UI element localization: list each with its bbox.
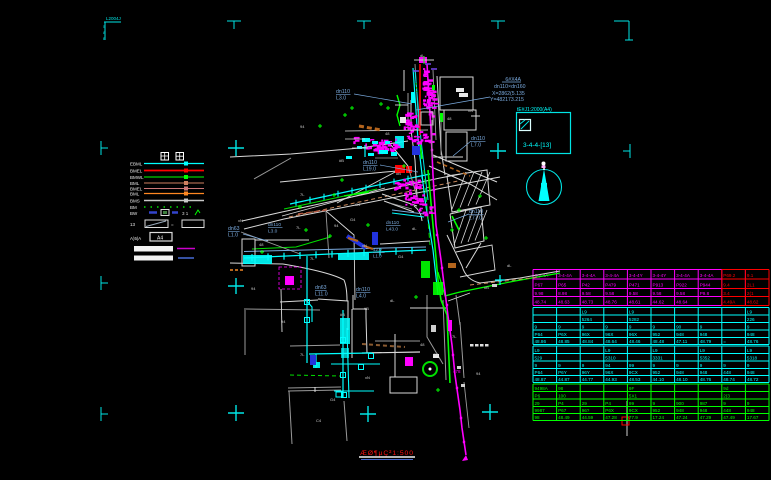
svg-text:9: 9 [676,363,679,368]
svg-text:5310: 5310 [605,356,616,361]
svg-text:=: = [171,222,174,227]
svg-text:L2004J: L2004J [106,16,121,21]
svg-text:96X: 96X [605,332,613,337]
svg-text:7L: 7L [452,334,457,339]
svg-text:48.64: 48.64 [605,339,617,344]
svg-text:42.0: 42.0 [373,247,382,252]
svg-text:P4: P4 [605,401,611,406]
svg-text:L77.0: L77.0 [469,216,482,222]
svg-text:9.1: 9.1 [747,273,754,278]
svg-text:48: 48 [447,116,452,121]
svg-text:=: = [723,339,726,344]
svg-text:dn110: dn110 [363,160,377,166]
svg-text:29: 29 [582,401,588,406]
svg-text:EBML: EBML [130,162,143,167]
svg-text:9: 9 [535,325,538,330]
svg-text:98: 98 [535,415,541,420]
svg-text:8.98: 8.98 [558,291,567,296]
svg-text:948: 948 [747,370,755,375]
svg-text:44.10: 44.10 [653,377,665,382]
svg-text:948: 948 [676,370,684,375]
svg-text:48.61: 48.61 [629,300,641,305]
svg-text:BMWL: BMWL [130,175,144,180]
svg-text:L9: L9 [629,310,635,315]
svg-text:47.28: 47.28 [605,415,617,420]
svg-text:L3.0: L3.0 [336,96,346,102]
svg-text:48.76: 48.76 [605,300,617,305]
svg-text:9: 9 [723,401,726,406]
svg-text:9: 9 [700,363,703,368]
svg-text:48.72: 48.72 [747,377,759,382]
svg-text:G4: G4 [350,217,356,222]
svg-text:48.10: 48.10 [676,377,688,382]
svg-text:dn63: dn63 [228,226,240,232]
svg-text:9.58: 9.58 [582,291,591,296]
svg-text:47.49: 47.49 [723,415,735,420]
svg-text:48.74: 48.74 [535,300,547,305]
svg-text:9: 9 [558,363,561,368]
svg-text:448: 448 [723,408,731,413]
svg-text:#B: #B [339,158,344,163]
svg-text:948: 948 [676,408,684,413]
svg-text:G4: G4 [355,202,361,207]
svg-text:P67: P67 [558,408,567,413]
svg-text:3-4-4A: 3-4-4A [558,273,573,278]
svg-text:3-4-4Y: 3-4-4Y [629,273,643,278]
svg-text:9: 9 [629,325,632,330]
svg-text:P944: P944 [700,283,711,288]
svg-text:L9: L9 [747,310,753,315]
svg-text:P69.2: P69.2 [723,273,735,278]
svg-text:17.67: 17.67 [747,415,759,420]
svg-text:9: 9 [747,401,750,406]
svg-text:BM: BM [130,205,137,210]
svg-text:L9: L9 [653,348,659,353]
svg-text:48.62: 48.62 [747,300,759,305]
svg-text:48: 48 [420,342,425,347]
svg-text:9: 9 [747,363,750,368]
svg-text:dL: dL [412,226,417,231]
svg-text:48.85: 48.85 [558,339,570,344]
svg-text:BMEL: BMEL [130,169,143,174]
svg-text:987: 987 [700,401,708,406]
svg-text:17.24: 17.24 [653,415,665,420]
svg-text:xN: xN [238,218,243,223]
svg-text:9: 9 [723,363,726,368]
svg-text:98: 98 [558,386,564,391]
svg-text:C4: C4 [316,418,322,423]
svg-text:48.53: 48.53 [629,377,641,382]
svg-text:A)5|A: A)5|A [130,236,141,241]
svg-text:44.77: 44.77 [582,377,594,382]
svg-text:952: 952 [653,408,661,413]
svg-text:9: 9 [535,363,538,368]
svg-text:96X: 96X [582,332,590,337]
svg-text:48.48: 48.48 [653,339,665,344]
svg-text:48: 48 [259,242,264,247]
svg-text:3.4: 3.4 [723,291,730,296]
svg-text:BW: BW [130,211,138,216]
svg-text:L7.0: L7.0 [471,143,481,149]
svg-text:478: 478 [453,369,461,374]
svg-text:94: 94 [300,124,305,129]
svg-text:P67: P67 [535,283,544,288]
svg-text:952: 952 [653,370,661,375]
svg-text:5352: 5352 [700,356,711,361]
svg-text:3-4-4A: 3-4-4A [700,273,715,278]
svg-text:xN: xN [362,243,367,248]
svg-text:9: 9 [653,363,656,368]
svg-text:44.93: 44.93 [605,377,617,382]
svg-text:P42: P42 [582,283,591,288]
svg-text:48.76: 48.76 [747,339,759,344]
svg-text:dn110×dn160: dn110×dn160 [494,84,526,90]
svg-text:dL: dL [390,298,395,303]
svg-text:948: 948 [676,332,684,337]
svg-text:BML: BML [130,192,140,197]
svg-text:L9: L9 [747,348,753,353]
svg-text:dL: dL [507,263,512,268]
svg-text:3331: 3331 [653,356,664,361]
svg-text:48.86: 48.86 [535,339,547,344]
svg-text:9.58: 9.58 [629,291,638,296]
svg-text:900: 900 [676,401,684,406]
svg-text:9: 9 [582,325,585,330]
svg-text:dn110: dn110 [268,222,281,228]
svg-text:dn110: dn110 [471,136,485,142]
svg-text:47.11: 47.11 [676,339,688,344]
svg-text:48.87: 48.87 [535,377,547,382]
svg-text:48.46: 48.46 [629,339,641,344]
svg-text:48.49: 48.49 [558,415,570,420]
svg-text:9CX: 9CX [629,370,638,375]
svg-text:2L1: 2L1 [747,283,755,288]
svg-text:94: 94 [251,286,256,291]
svg-text:P64: P64 [535,332,544,337]
svg-text:48.73: 48.73 [582,300,594,305]
svg-text:9: 9 [582,363,585,368]
svg-text:9.4: 9.4 [723,283,730,288]
svg-text:dn110: dn110 [469,209,483,215]
svg-text:94: 94 [334,223,339,228]
svg-text:5318: 5318 [747,356,758,361]
svg-text:L9: L9 [605,348,611,353]
svg-text:48: 48 [385,131,390,136]
svg-text:7L: 7L [300,352,305,357]
svg-text:9: 9 [558,325,561,330]
svg-text:#B: #B [364,306,369,311]
svg-text:L9: L9 [700,348,706,353]
svg-text:9: 9 [653,401,656,406]
svg-text:77.9: 77.9 [629,415,638,420]
svg-text:2(1: 2(1 [747,291,754,296]
svg-text:L4.0: L4.0 [356,294,366,300]
svg-text:952: 952 [653,332,661,337]
svg-text:44.87: 44.87 [558,377,570,382]
svg-text:29: 29 [535,401,541,406]
svg-text:G4: G4 [398,254,404,259]
svg-text:L19.0: L19.0 [363,167,376,173]
svg-text:L11.0: L11.0 [315,292,328,298]
svg-text:96Y: 96Y [582,370,590,375]
svg-text:L1.0: L1.0 [228,233,238,239]
svg-text:ÆØ¶µÇ²1:500: ÆØ¶µÇ²1:500 [360,450,413,457]
svg-text:9F: 9F [629,386,635,391]
svg-text:94: 94 [605,363,611,368]
svg-text:dn110: dn110 [336,89,350,95]
svg-text:xN: xN [365,375,370,380]
svg-text:48.79: 48.79 [700,339,712,344]
svg-text:dL: dL [420,53,425,58]
svg-text:48.74: 48.74 [723,377,735,382]
svg-text:BML: BML [130,181,140,186]
svg-text:48.76: 48.76 [700,377,712,382]
svg-text:L9: L9 [535,348,541,353]
svg-text:3-4-4Y: 3-4-4Y [653,273,667,278]
svg-text:9: 9 [605,325,608,330]
svg-text:dn63: dn63 [315,285,327,291]
svg-text:96X: 96X [629,332,637,337]
svg-text:3-4-4-[13]: 3-4-4-[13] [523,142,551,149]
svg-text:100: 100 [558,394,566,399]
svg-text:7L: 7L [300,192,305,197]
svg-text:44.62: 44.62 [653,300,665,305]
svg-text:A4: A4 [157,236,163,242]
svg-text:5264: 5264 [582,317,593,322]
svg-text:5282: 5282 [629,317,640,322]
svg-text:47.24: 47.24 [676,415,688,420]
svg-text:7L: 7L [296,225,301,230]
svg-text:48.84: 48.84 [582,339,594,344]
svg-text:P6Y: P6Y [558,370,567,375]
svg-text:948: 948 [700,332,708,337]
svg-text:L9: L9 [582,310,588,315]
svg-text:4.49A: 4.49A [723,300,736,305]
svg-text:BMS: BMS [130,199,140,204]
svg-text:9987: 9987 [535,408,546,413]
svg-text:448: 448 [723,370,731,375]
svg-text:P922: P922 [676,283,687,288]
svg-text:#B: #B [484,285,489,290]
svg-text:48.64: 48.64 [676,300,688,305]
svg-text:96X: 96X [605,370,613,375]
svg-text:P64: P64 [535,370,544,375]
svg-text:948: 948 [700,408,708,413]
svg-text:3-4-4A: 3-4-4A [605,273,620,278]
svg-text:L43.0: L43.0 [386,227,398,233]
svg-text:P6X: P6X [605,408,614,413]
svg-text:dn110: dn110 [386,220,399,226]
svg-text:L1.0: L1.0 [373,254,382,259]
svg-text:9.98: 9.98 [535,291,544,296]
svg-text:5X1: 5X1 [629,394,638,399]
svg-text:G4: G4 [330,397,336,402]
svg-text:Y=482173.215: Y=482173.215 [490,97,524,103]
svg-text:226: 226 [747,317,755,322]
svg-text:9.58: 9.58 [653,291,662,296]
svg-text:L3.0: L3.0 [268,229,278,235]
svg-text:3 1: 3 1 [182,211,189,216]
svg-text:9.58: 9.58 [676,291,685,296]
svg-text:xN: xN [468,108,473,113]
svg-text:P913: P913 [653,283,664,288]
svg-text:96?: 96? [582,408,590,413]
svg-text:9d: 9d [723,386,729,391]
svg-text:90: 90 [676,325,682,330]
svg-text:3-4-4A: 3-4-4A [676,273,691,278]
svg-text:B: B [103,36,106,41]
svg-text:948: 948 [700,370,708,375]
svg-text:P65: P65 [558,283,567,288]
svg-text:P9.8: P9.8 [700,291,710,296]
svg-text:P4: P4 [558,401,564,406]
svg-text:47.29: 47.29 [700,415,712,420]
svg-text:P6: P6 [535,394,541,399]
svg-text:44.59: 44.59 [582,415,594,420]
svg-text:P479: P479 [605,283,616,288]
svg-text:13: 13 [130,222,136,227]
svg-text:9: 9 [747,325,750,330]
svg-text:dn110: dn110 [356,287,370,293]
svg-text:#B: #B [396,171,401,176]
svg-text:9498A: 9498A [535,386,549,391]
svg-text:G4: G4 [433,352,439,357]
svg-text:99: 99 [629,401,635,406]
svg-text:9.58: 9.58 [605,291,614,296]
svg-text:P471: P471 [629,283,640,288]
svg-text:9CX: 9CX [629,408,638,413]
svg-text:#B: #B [340,312,345,317]
svg-text:7L: 7L [310,256,315,261]
svg-text:948: 948 [747,332,755,337]
svg-text:2(3: 2(3 [723,394,730,399]
svg-text:48.63: 48.63 [558,300,570,305]
svg-text:9: 9 [700,325,703,330]
svg-text:9: 9 [653,325,656,330]
svg-text:94: 94 [476,371,481,376]
svg-text:3-4-4A: 3-4-4A [582,273,597,278]
svg-text:P6X: P6X [558,332,567,337]
svg-text:948: 948 [747,408,755,413]
svg-text:529: 529 [535,356,543,361]
svg-text:94: 94 [281,319,286,324]
svg-text:99: 99 [629,363,635,368]
